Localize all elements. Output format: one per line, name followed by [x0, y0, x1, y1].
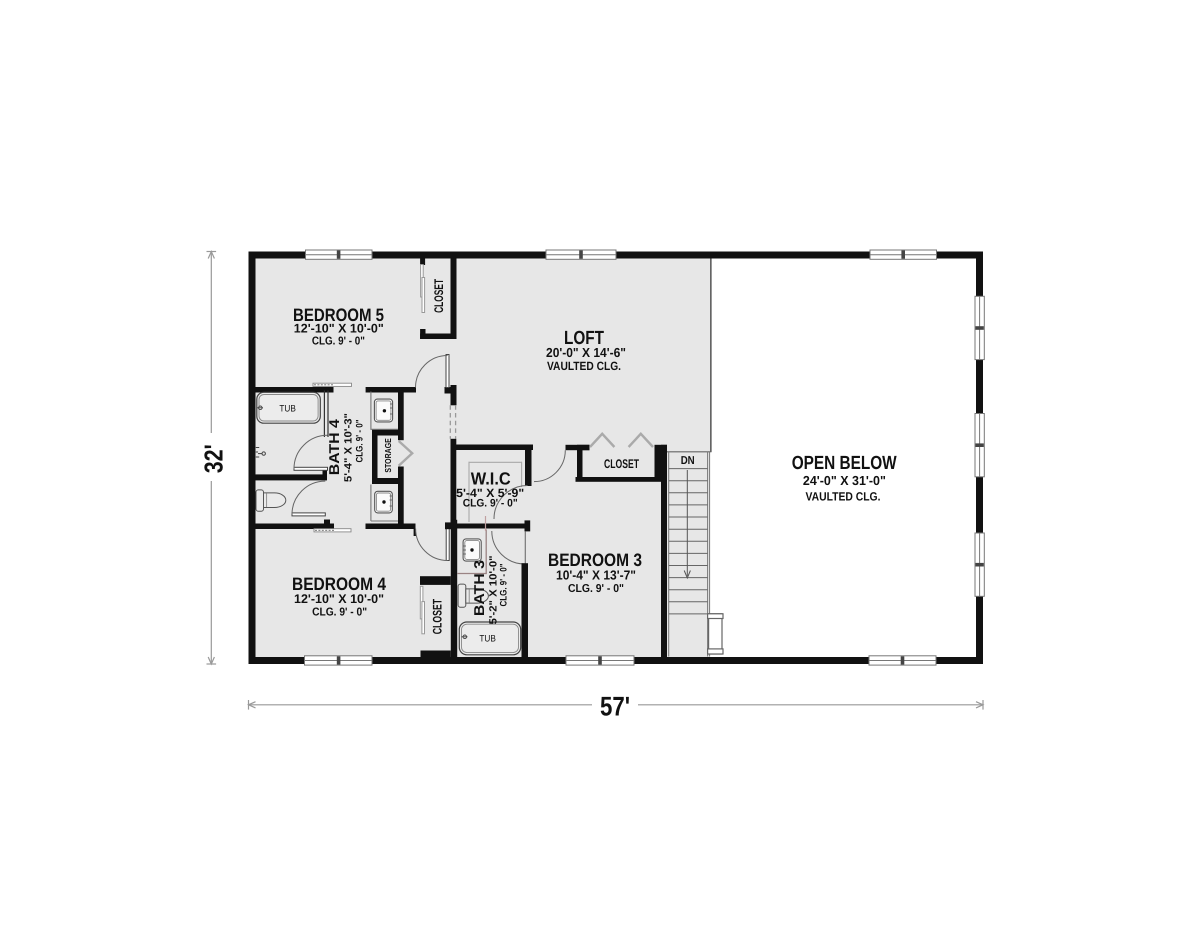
svg-text:CLG. 9' - 0": CLG. 9' - 0" [354, 420, 365, 463]
svg-text:12'-10" X 10'-0": 12'-10" X 10'-0" [294, 592, 384, 606]
svg-text:VAULTED CLG.: VAULTED CLG. [806, 490, 881, 504]
svg-text:57': 57' [600, 691, 630, 721]
svg-text:DN: DN [681, 455, 695, 467]
svg-text:CLOSET: CLOSET [431, 599, 445, 635]
svg-text:BATH 3: BATH 3 [472, 560, 488, 616]
svg-text:12'-10" X 10'-0": 12'-10" X 10'-0" [294, 322, 384, 336]
svg-text:CLG. 9' - 0": CLG. 9' - 0" [463, 497, 518, 509]
svg-text:24'-0" X 31'-0": 24'-0" X 31'-0" [803, 473, 886, 488]
svg-text:32': 32' [198, 444, 228, 473]
svg-text:OPEN BELOW: OPEN BELOW [792, 453, 897, 474]
svg-text:CLG. 9' - 0": CLG. 9' - 0" [499, 564, 510, 607]
svg-text:STORAGE: STORAGE [383, 438, 393, 473]
svg-text:CLG. 9' - 0": CLG. 9' - 0" [312, 336, 365, 348]
svg-text:TUB: TUB [479, 634, 496, 645]
svg-text:CLOSET: CLOSET [604, 457, 639, 471]
svg-text:VAULTED CLG.: VAULTED CLG. [547, 359, 621, 373]
svg-text:BATH 4: BATH 4 [327, 419, 343, 475]
svg-text:10'-4" X 13'-7": 10'-4" X 13'-7" [556, 568, 636, 583]
svg-text:CLOSET: CLOSET [432, 279, 446, 313]
svg-text:CLG. 9' - 0": CLG. 9' - 0" [312, 607, 367, 619]
svg-text:5'-4" X 10'-3": 5'-4" X 10'-3" [343, 413, 355, 482]
svg-text:TUB: TUB [279, 404, 296, 415]
svg-text:CLG. 9' - 0": CLG. 9' - 0" [568, 583, 624, 595]
svg-text:20'-0" X 14'-6": 20'-0" X 14'-6" [546, 345, 626, 360]
